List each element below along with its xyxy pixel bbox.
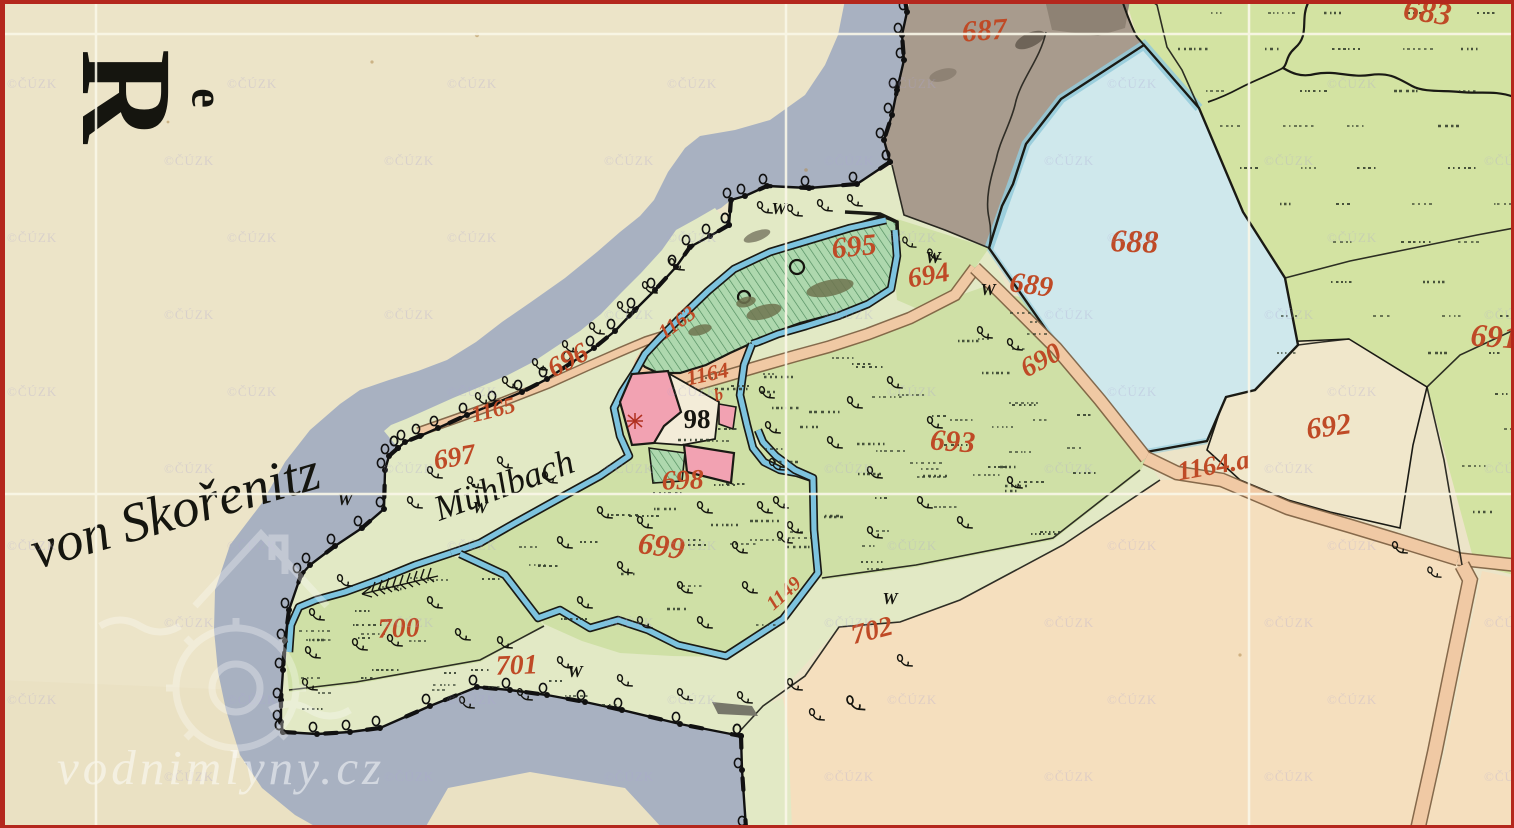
svg-text:©ČÚZK: ©ČÚZK: [384, 153, 434, 168]
svg-text:©ČÚZK: ©ČÚZK: [887, 230, 937, 245]
svg-text:692: 692: [1304, 407, 1353, 446]
svg-text:©ČÚZK: ©ČÚZK: [1327, 230, 1377, 245]
svg-text:©ČÚZK: ©ČÚZK: [447, 230, 497, 245]
svg-text:©ČÚZK: ©ČÚZK: [384, 769, 434, 784]
svg-text:©ČÚZK: ©ČÚZK: [1327, 76, 1377, 91]
svg-text:©ČÚZK: ©ČÚZK: [604, 615, 654, 630]
svg-text:689: 689: [1007, 266, 1055, 304]
svg-text:©ČÚZK: ©ČÚZK: [1264, 461, 1314, 476]
svg-text:©ČÚZK: ©ČÚZK: [1484, 461, 1514, 476]
svg-text:©ČÚZK: ©ČÚZK: [824, 153, 874, 168]
svg-text:©ČÚZK: ©ČÚZK: [1264, 769, 1314, 784]
svg-text:©ČÚZK: ©ČÚZK: [447, 384, 497, 399]
svg-text:©ČÚZK: ©ČÚZK: [667, 384, 717, 399]
svg-text:©ČÚZK: ©ČÚZK: [447, 76, 497, 91]
svg-text:©ČÚZK: ©ČÚZK: [7, 384, 57, 399]
svg-text:R: R: [54, 49, 198, 145]
svg-text:©ČÚZK: ©ČÚZK: [887, 76, 937, 91]
svg-text:©ČÚZK: ©ČÚZK: [164, 153, 214, 168]
svg-text:©ČÚZK: ©ČÚZK: [384, 615, 434, 630]
svg-text:©ČÚZK: ©ČÚZK: [227, 384, 277, 399]
svg-text:©ČÚZK: ©ČÚZK: [667, 230, 717, 245]
svg-text:©ČÚZK: ©ČÚZK: [384, 461, 434, 476]
svg-text:©ČÚZK: ©ČÚZK: [824, 769, 874, 784]
svg-text:701: 701: [495, 649, 538, 681]
svg-text:©ČÚZK: ©ČÚZK: [1107, 76, 1157, 91]
svg-text:©ČÚZK: ©ČÚZK: [604, 461, 654, 476]
svg-text:©ČÚZK: ©ČÚZK: [667, 76, 717, 91]
svg-text:W: W: [980, 280, 997, 299]
svg-text:©ČÚZK: ©ČÚZK: [227, 230, 277, 245]
svg-text:W: W: [567, 662, 584, 681]
svg-text:©ČÚZK: ©ČÚZK: [1484, 307, 1514, 322]
svg-text:©ČÚZK: ©ČÚZK: [824, 461, 874, 476]
svg-text:©ČÚZK: ©ČÚZK: [1044, 461, 1094, 476]
svg-text:695: 695: [830, 228, 878, 266]
svg-text:©ČÚZK: ©ČÚZK: [824, 615, 874, 630]
svg-text:©ČÚZK: ©ČÚZK: [1327, 384, 1377, 399]
svg-text:©ČÚZK: ©ČÚZK: [7, 692, 57, 707]
svg-text:©ČÚZK: ©ČÚZK: [667, 692, 717, 707]
svg-text:©ČÚZK: ©ČÚZK: [604, 153, 654, 168]
svg-text:693: 693: [929, 423, 976, 459]
svg-text:©ČÚZK: ©ČÚZK: [384, 307, 434, 322]
svg-text:©ČÚZK: ©ČÚZK: [1327, 692, 1377, 707]
svg-text:©ČÚZK: ©ČÚZK: [7, 76, 57, 91]
svg-text:©ČÚZK: ©ČÚZK: [447, 538, 497, 553]
svg-text:98: 98: [684, 404, 711, 434]
svg-text:©ČÚZK: ©ČÚZK: [7, 538, 57, 553]
svg-text:©ČÚZK: ©ČÚZK: [1044, 615, 1094, 630]
svg-text:691: 691: [1470, 316, 1514, 355]
svg-text:W: W: [882, 589, 899, 608]
svg-text:©ČÚZK: ©ČÚZK: [1264, 615, 1314, 630]
svg-text:©ČÚZK: ©ČÚZK: [1327, 538, 1377, 553]
svg-text:©ČÚZK: ©ČÚZK: [1264, 153, 1314, 168]
svg-text:©ČÚZK: ©ČÚZK: [1044, 153, 1094, 168]
svg-text:©ČÚZK: ©ČÚZK: [604, 307, 654, 322]
svg-text:©ČÚZK: ©ČÚZK: [824, 307, 874, 322]
svg-text:©ČÚZK: ©ČÚZK: [1107, 384, 1157, 399]
svg-text:©ČÚZK: ©ČÚZK: [604, 769, 654, 784]
svg-text:©ČÚZK: ©ČÚZK: [1044, 769, 1094, 784]
svg-text:©ČÚZK: ©ČÚZK: [1107, 230, 1157, 245]
svg-text:©ČÚZK: ©ČÚZK: [887, 384, 937, 399]
svg-text:©ČÚZK: ©ČÚZK: [164, 461, 214, 476]
svg-text:687: 687: [961, 12, 1009, 48]
svg-text:©ČÚZK: ©ČÚZK: [1484, 153, 1514, 168]
svg-text:©ČÚZK: ©ČÚZK: [667, 538, 717, 553]
svg-text:©ČÚZK: ©ČÚZK: [887, 692, 937, 707]
svg-text:©ČÚZK: ©ČÚZK: [1107, 538, 1157, 553]
svg-text:©ČÚZK: ©ČÚZK: [1107, 692, 1157, 707]
svg-text:©ČÚZK: ©ČÚZK: [1044, 307, 1094, 322]
svg-text:e: e: [183, 88, 232, 108]
svg-text:©ČÚZK: ©ČÚZK: [1484, 615, 1514, 630]
svg-text:©ČÚZK: ©ČÚZK: [7, 230, 57, 245]
svg-text:©ČÚZK: ©ČÚZK: [164, 307, 214, 322]
svg-text:©ČÚZK: ©ČÚZK: [1484, 769, 1514, 784]
svg-text:©ČÚZK: ©ČÚZK: [227, 76, 277, 91]
svg-text:©ČÚZK: ©ČÚZK: [447, 692, 497, 707]
svg-text:©ČÚZK: ©ČÚZK: [887, 538, 937, 553]
svg-text:vodnimlyny.cz: vodnimlyny.cz: [57, 740, 385, 795]
svg-text:698: 698: [661, 464, 704, 496]
svg-text:©ČÚZK: ©ČÚZK: [1264, 307, 1314, 322]
